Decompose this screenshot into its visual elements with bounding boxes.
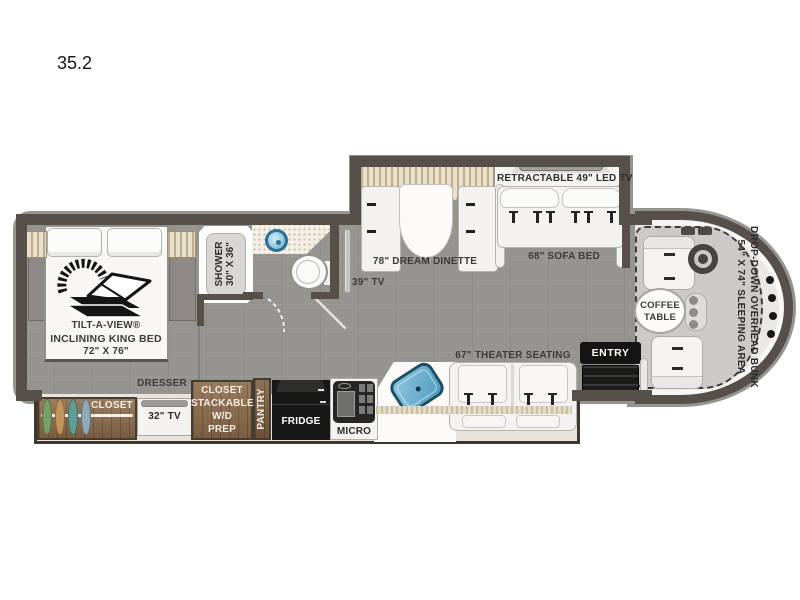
fridge-label: FRIDGE <box>272 416 330 428</box>
hanger-icon <box>42 399 52 435</box>
closet-label: CLOSET <box>90 400 134 412</box>
headboard-window <box>167 231 196 258</box>
sofa-back-cushion <box>500 188 559 208</box>
floorplan-canvas: 35.2 TILT-A-VIEW® INCLINING KING BED 72"… <box>0 0 800 600</box>
micro-label: MICRO <box>330 426 378 438</box>
cab-vent <box>698 227 712 235</box>
theater-divider <box>511 364 514 408</box>
dinette-table <box>399 184 453 258</box>
wd-label-3: W/D <box>191 410 253 423</box>
driver-seat <box>643 236 695 290</box>
bathroom-wall <box>330 214 339 299</box>
entry-badge: ENTRY <box>580 342 641 364</box>
model-number: 35.2 <box>57 53 92 74</box>
shower-label: SHOWER 30" X 36" <box>214 232 238 296</box>
wall <box>572 390 652 401</box>
coffee-table-label-2: TABLE <box>634 312 686 324</box>
microwave-icon <box>333 381 375 423</box>
bunk-label-2: 54" X 74" SLEEPING AREA <box>736 240 747 375</box>
wall <box>16 214 27 401</box>
cab-vent <box>681 227 695 235</box>
nightstand <box>169 257 196 321</box>
shower-label-2: 30" X 36" <box>225 242 236 286</box>
wall <box>16 390 42 401</box>
tv-39 <box>344 229 351 293</box>
bunk-label: DROP-DOWN OVERHEAD BUNK 54" X 74" SLEEPI… <box>733 212 759 402</box>
tilt-a-view-icon <box>54 256 158 320</box>
theater-headrest <box>462 415 506 428</box>
sofa-label: 68" SOFA BED <box>500 251 628 263</box>
sofa-back-cushion <box>562 188 621 208</box>
dresser-label: DRESSER <box>132 378 192 390</box>
shower-wall <box>197 294 204 326</box>
dinette-label: 78" DREAM DINETTE <box>355 256 495 268</box>
slide-wall <box>350 156 630 167</box>
bedroom-partition <box>198 326 200 388</box>
pantry-label: PANTRY <box>256 378 268 440</box>
theater-seat-cushion <box>458 365 507 403</box>
pillow <box>47 228 102 257</box>
bed-label-3: 72" X 76" <box>46 346 166 358</box>
bed-label-2: INCLINING KING BED <box>46 333 166 345</box>
toilet-icon <box>290 254 328 290</box>
coffee-table-label-1: COFFEE <box>634 300 686 312</box>
hanger-icon <box>68 399 78 435</box>
entry-label: ENTRY <box>592 347 630 359</box>
door-swing-arc <box>256 292 316 342</box>
bunk-label-1: DROP-DOWN OVERHEAD BUNK <box>748 226 759 388</box>
wall <box>16 214 360 225</box>
theater-label: 67" THEATER SEATING <box>449 350 577 362</box>
theater-headrest <box>516 415 560 428</box>
tv-32-screen <box>141 400 188 407</box>
wd-label-1: CLOSET <box>191 384 253 397</box>
wd-label-4: PREP <box>191 423 253 436</box>
fridge-icon <box>272 380 330 440</box>
bed-label-1: TILT-A-VIEW® <box>46 320 166 332</box>
pillow <box>107 228 162 257</box>
tv-32-label: 32" TV <box>137 411 192 423</box>
steering-wheel-icon <box>688 244 718 274</box>
bathroom-wall <box>311 292 339 299</box>
wd-label-2: STACKABLE <box>191 397 253 410</box>
bathroom-sink-icon <box>265 229 288 252</box>
counter-trim-strip <box>376 406 572 414</box>
tv-39-label: 39" TV <box>352 277 385 289</box>
slide-wall <box>350 156 361 225</box>
passenger-seat <box>651 336 703 389</box>
nightstand <box>28 257 45 321</box>
retractable-tv-label: RETRACTABLE 49" LED TV <box>497 173 621 185</box>
hanger-icon <box>55 399 65 435</box>
shower-label-1: SHOWER <box>214 242 225 287</box>
